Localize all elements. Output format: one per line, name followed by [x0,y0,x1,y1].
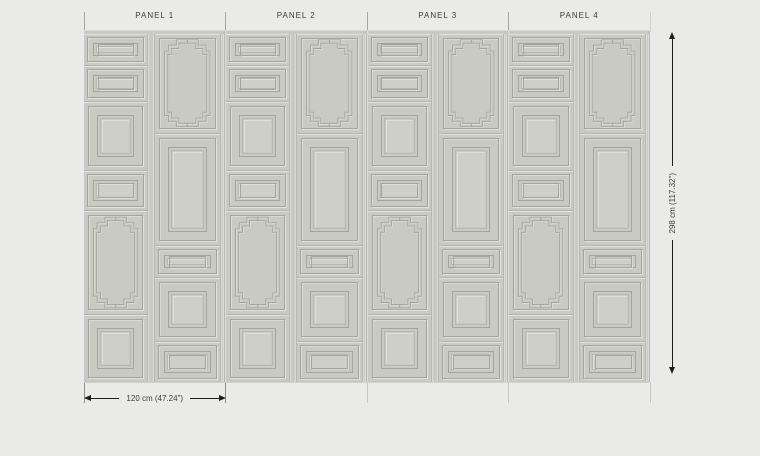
panel-boundary-tick [367,12,368,32]
panel-column-right [439,34,504,382]
panel-column-left [84,34,147,382]
ornate-panel-board [368,211,431,315]
panel-column-left [509,34,572,382]
molding-panel-board [155,246,220,279]
molding-panel-board [580,278,645,341]
panel-boundary-tick [650,12,651,32]
molding-center-detail [169,355,206,370]
molding-panel-board [509,34,572,66]
molding-panel-board [155,134,220,246]
molding-center-panel [102,120,129,152]
ornate-panel-board [226,211,289,315]
panels [84,30,650,383]
panel-boundary-tick [84,12,85,32]
molding-panel-board [509,66,572,101]
wallpaper-panel [84,31,225,382]
arrow-left-icon [84,395,91,401]
panel-stile [645,34,650,382]
arrow-right-icon [219,395,226,401]
panel-stile [147,34,155,382]
molding-panel-board [368,102,431,171]
molding-panel-board [155,342,220,382]
ornate-fretwork-icon [509,211,572,314]
ornate-fretwork-icon [84,211,147,314]
molding-panel-board [509,315,572,382]
molding-panel-board [297,134,362,246]
height-dimension-label: 298 cm (117.32") [668,166,677,241]
molding-panel-board [226,34,289,66]
molding-center-detail [595,256,632,268]
molding-center-detail [381,183,417,198]
dimension-line [672,240,673,367]
molding-panel-board [439,246,504,279]
ornate-panel-board [155,34,220,134]
panel-boundary-tick [508,12,509,32]
molding-center-detail [381,77,417,90]
panel-column-left [368,34,431,382]
extension-line [650,383,651,403]
molding-panel-board [509,102,572,171]
molding-center-detail [98,44,134,56]
arrow-down-icon [669,367,675,374]
extension-line [367,383,368,403]
panel-column-right [155,34,220,382]
ornate-panel-board [580,34,645,134]
stage: PANEL 1PANEL 2PANEL 3PANEL 4 120 cm (47.… [0,0,760,456]
molding-center-panel [386,120,413,152]
molding-center-detail [240,183,276,198]
molding-center-detail [453,355,490,370]
molding-panel-board [439,342,504,382]
panel-boundary-tick [225,12,226,32]
ornate-panel-board [439,34,504,134]
molding-center-panel [527,333,554,364]
dimension-line [190,398,218,399]
molding-panel-board [368,34,431,66]
molding-panel-board [84,102,147,171]
molding-panel-board [84,315,147,382]
molding-center-detail [240,44,276,56]
molding-center-detail [98,183,134,198]
ornate-panel-board [84,211,147,315]
ornate-fretwork-icon [297,34,362,133]
panel-stile [573,34,581,382]
molding-panel-board [580,342,645,382]
molding-center-detail [523,183,559,198]
molding-center-panel [102,333,129,364]
molding-panel-board [84,171,147,211]
ornate-fretwork-icon [155,34,220,133]
dimension-line [672,39,673,166]
molding-panel-board [368,171,431,211]
molding-panel-board [439,134,504,246]
molding-center-panel [598,152,627,227]
molding-panel-board [226,315,289,382]
ornate-panel-board [509,211,572,315]
molding-panel-board [297,246,362,279]
molding-center-panel [386,333,413,364]
height-dimension: 298 cm (117.32") [664,32,680,374]
panel-column-right [297,34,362,382]
molding-panel-board [580,134,645,246]
molding-center-panel [244,333,271,364]
molding-center-panel [457,296,486,322]
molding-center-detail [523,77,559,90]
molding-panel-board [84,34,147,66]
wallpaper-panel [508,31,650,382]
molding-panel-board [368,315,431,382]
wallpaper-panel [225,31,367,382]
molding-center-detail [169,256,206,268]
molding-center-panel [244,120,271,152]
molding-center-panel [598,296,627,322]
dimension-line [91,398,119,399]
panel-label: PANEL 4 [509,9,651,23]
ornate-fretwork-icon [226,211,289,314]
molding-panel-board [226,102,289,171]
molding-panel-board [155,278,220,341]
molding-center-detail [595,355,632,370]
molding-panel-board [368,66,431,101]
ornate-panel-board [297,34,362,134]
panel-stile [431,34,439,382]
molding-center-detail [381,44,417,56]
panel-label: PANEL 1 [84,9,226,23]
panel-column-left [226,34,289,382]
extension-line [508,383,509,403]
molding-panel-board [509,171,572,211]
panel-label: PANEL 2 [226,9,368,23]
molding-center-detail [240,77,276,90]
panel-label: PANEL 3 [367,9,509,23]
ornate-fretwork-icon [368,211,431,314]
arrow-up-icon [669,32,675,39]
panel-stile [289,34,297,382]
molding-panel-board [226,171,289,211]
molding-center-panel [315,296,344,322]
molding-center-detail [311,355,348,370]
molding-panel-board [84,66,147,101]
molding-center-detail [453,256,490,268]
molding-center-detail [311,256,348,268]
wallpaper-panel [367,31,509,382]
molding-panel-board [580,246,645,279]
width-dimension-label: 120 cm (47.24") [119,394,190,403]
molding-center-panel [457,152,486,227]
molding-center-panel [173,296,202,322]
panel-column-right [580,34,645,382]
molding-center-panel [173,152,202,227]
molding-panel-board [226,66,289,101]
molding-center-detail [98,77,134,90]
width-dimension: 120 cm (47.24") [84,391,226,405]
molding-center-panel [315,152,344,227]
molding-panel-board [439,278,504,341]
molding-panel-board [297,278,362,341]
ornate-fretwork-icon [439,34,504,133]
molding-center-panel [527,120,554,152]
ornate-fretwork-icon [580,34,645,133]
molding-panel-board [297,342,362,382]
molding-center-detail [523,44,559,56]
